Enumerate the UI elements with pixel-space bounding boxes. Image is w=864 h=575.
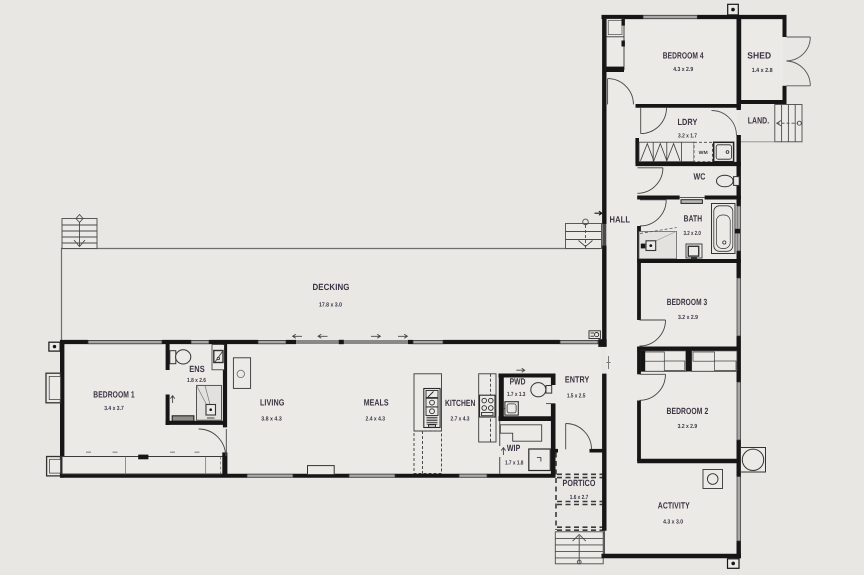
svg-text:ENS: ENS: [189, 364, 205, 374]
svg-text:LIVING: LIVING: [260, 397, 285, 407]
svg-text:ENTRY: ENTRY: [565, 375, 590, 385]
svg-text:BEDROOM 1: BEDROOM 1: [93, 389, 135, 399]
svg-text:ACTIVITY: ACTIVITY: [658, 500, 690, 510]
svg-text:WIP: WIP: [507, 443, 521, 453]
svg-text:3.2 x 2.9: 3.2 x 2.9: [678, 423, 698, 430]
svg-text:WM: WM: [699, 150, 708, 155]
svg-text:PWD: PWD: [510, 376, 526, 386]
svg-text:2.4 x 4.3: 2.4 x 4.3: [366, 415, 386, 422]
svg-text:4.3 x 2.9: 4.3 x 2.9: [673, 66, 694, 73]
svg-text:PORTICO: PORTICO: [563, 478, 596, 488]
svg-text:4.3 x 3.0: 4.3 x 3.0: [663, 518, 684, 525]
svg-text:MEALS: MEALS: [364, 397, 389, 407]
svg-text:BEDROOM 2: BEDROOM 2: [667, 406, 709, 416]
svg-text:SHED: SHED: [747, 51, 771, 61]
svg-text:BATH: BATH: [684, 213, 703, 223]
svg-text:1.4 x 2.8: 1.4 x 2.8: [752, 67, 774, 74]
svg-text:3.2 x 1.7: 3.2 x 1.7: [678, 133, 698, 140]
svg-text:3.2 x 2.0: 3.2 x 2.0: [683, 230, 701, 237]
svg-text:BEDROOM 3: BEDROOM 3: [667, 297, 708, 307]
svg-text:1.6 x 2.7: 1.6 x 2.7: [570, 494, 589, 501]
svg-text:2.7 x 4.3: 2.7 x 4.3: [451, 415, 471, 422]
svg-text:3.8 x 4.3: 3.8 x 4.3: [261, 415, 282, 422]
svg-text:1.7 x 1.3: 1.7 x 1.3: [507, 391, 526, 398]
svg-text:DECKING: DECKING: [313, 282, 350, 292]
svg-text:HALL: HALL: [610, 214, 631, 224]
svg-text:3.4 x 3.7: 3.4 x 3.7: [104, 405, 124, 412]
svg-text:3.2 x 2.9: 3.2 x 2.9: [678, 314, 699, 321]
svg-text:KITCHEN: KITCHEN: [445, 398, 476, 408]
svg-text:WC: WC: [694, 172, 706, 182]
svg-text:1.7 x 1.8: 1.7 x 1.8: [505, 459, 524, 466]
svg-text:1.5 x 2.5: 1.5 x 2.5: [567, 392, 586, 399]
svg-text:LAND.: LAND.: [748, 116, 770, 126]
svg-text:1.8 x 2.6: 1.8 x 2.6: [187, 377, 207, 384]
svg-text:BEDROOM 4: BEDROOM 4: [663, 50, 704, 60]
svg-text:LDRY: LDRY: [678, 117, 698, 127]
svg-text:17.8 x 3.0: 17.8 x 3.0: [319, 302, 343, 309]
